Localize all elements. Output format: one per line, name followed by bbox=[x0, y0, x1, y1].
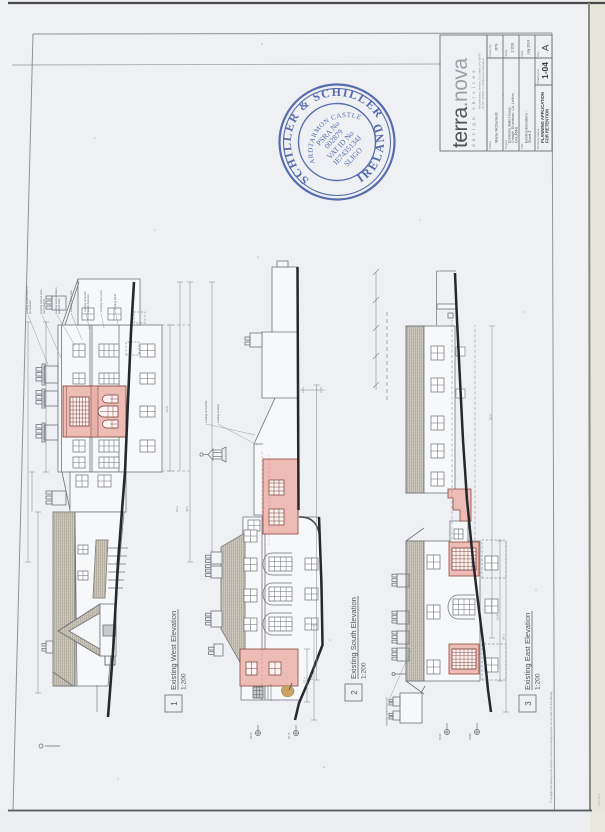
svg-text:52.60: 52.60 bbox=[468, 733, 472, 740]
svg-text:Drawn By: Drawn By bbox=[488, 44, 492, 57]
svg-text:A: A bbox=[541, 44, 552, 51]
svg-text:18.9: 18.9 bbox=[310, 674, 314, 680]
svg-text:terra.nova: terra.nova bbox=[449, 58, 472, 148]
svg-text:1: 1 bbox=[170, 701, 179, 706]
svg-text:roof retained: roof retained bbox=[42, 298, 46, 314]
svg-text:existing stone sills: existing stone sills bbox=[69, 290, 73, 312]
svg-text:1:200: 1:200 bbox=[181, 673, 188, 690]
svg-text:16.8: 16.8 bbox=[496, 614, 500, 620]
svg-text:painted finish: painted finish bbox=[57, 298, 61, 314]
svg-text:2407-1104: 2407-1104 bbox=[597, 793, 601, 806]
svg-text:21.2: 21.2 bbox=[175, 506, 179, 512]
svg-text:goods retained: goods retained bbox=[86, 294, 90, 312]
svg-text:53.90: 53.90 bbox=[438, 733, 442, 740]
svg-text:1-04: 1-04 bbox=[540, 62, 550, 79]
svg-text:JPN: JPN bbox=[494, 43, 499, 51]
svg-text:© copyright: this drawing is t: © copyright: this drawing is the propert… bbox=[550, 691, 553, 803]
svg-text:be retained: be retained bbox=[28, 300, 32, 314]
svg-text:Rev: Rev bbox=[536, 51, 540, 57]
svg-text:1:200: 1:200 bbox=[361, 662, 368, 679]
svg-text:existing wall vents: existing wall vents bbox=[99, 290, 103, 312]
svg-text:existing plinth: existing plinth bbox=[113, 293, 117, 310]
svg-text:52.75: 52.75 bbox=[287, 732, 291, 739]
svg-text:Date: Date bbox=[520, 50, 524, 56]
svg-text:Existing East Elevation: Existing East Elevation bbox=[523, 613, 532, 690]
svg-text:Scale: Scale bbox=[504, 49, 508, 56]
svg-text:existing natural slate roof: existing natural slate roof bbox=[385, 697, 389, 726]
svg-text:Existing South Elevation: Existing South Elevation bbox=[349, 597, 358, 679]
svg-text:1:200: 1:200 bbox=[535, 673, 542, 690]
svg-text:3: 3 bbox=[524, 701, 533, 706]
svg-text:existing roof profile: existing roof profile bbox=[204, 400, 208, 423]
svg-text:Mountshannon, Dromod, Co. Leit: Mountshannon, Dromod, Co. Leitrim, N41 W… bbox=[478, 53, 482, 109]
svg-text:14.5: 14.5 bbox=[165, 406, 169, 412]
svg-text:54.20: 54.20 bbox=[249, 732, 253, 739]
svg-text:Sheet 1: Sheet 1 bbox=[528, 131, 532, 143]
svg-text:tel: 087 1234567 e: info@terr: tel: 087 1234567 e: info@terranovadesign… bbox=[481, 57, 485, 109]
svg-text:N41 A5F8: N41 A5F8 bbox=[515, 127, 519, 143]
svg-text:12.4: 12.4 bbox=[303, 677, 307, 683]
svg-text:Maria McDermott: Maria McDermott bbox=[494, 111, 499, 143]
svg-text:July 2024: July 2024 bbox=[527, 40, 531, 55]
svg-text:Client: Client bbox=[488, 141, 492, 149]
svg-text:existing parapet: existing parapet bbox=[216, 404, 220, 423]
svg-text:43.6: 43.6 bbox=[185, 506, 189, 512]
svg-text:FOR RETENTION: FOR RETENTION bbox=[545, 109, 550, 143]
svg-text:24.3: 24.3 bbox=[502, 634, 506, 640]
svg-text:19.6: 19.6 bbox=[489, 414, 493, 420]
svg-text:2: 2 bbox=[350, 690, 359, 695]
svg-text:design services: design services bbox=[471, 67, 476, 147]
svg-text:Title: Title bbox=[520, 143, 524, 149]
svg-text:Existing West Elevation: Existing West Elevation bbox=[169, 611, 178, 690]
svg-text:1:200: 1:200 bbox=[510, 42, 515, 53]
